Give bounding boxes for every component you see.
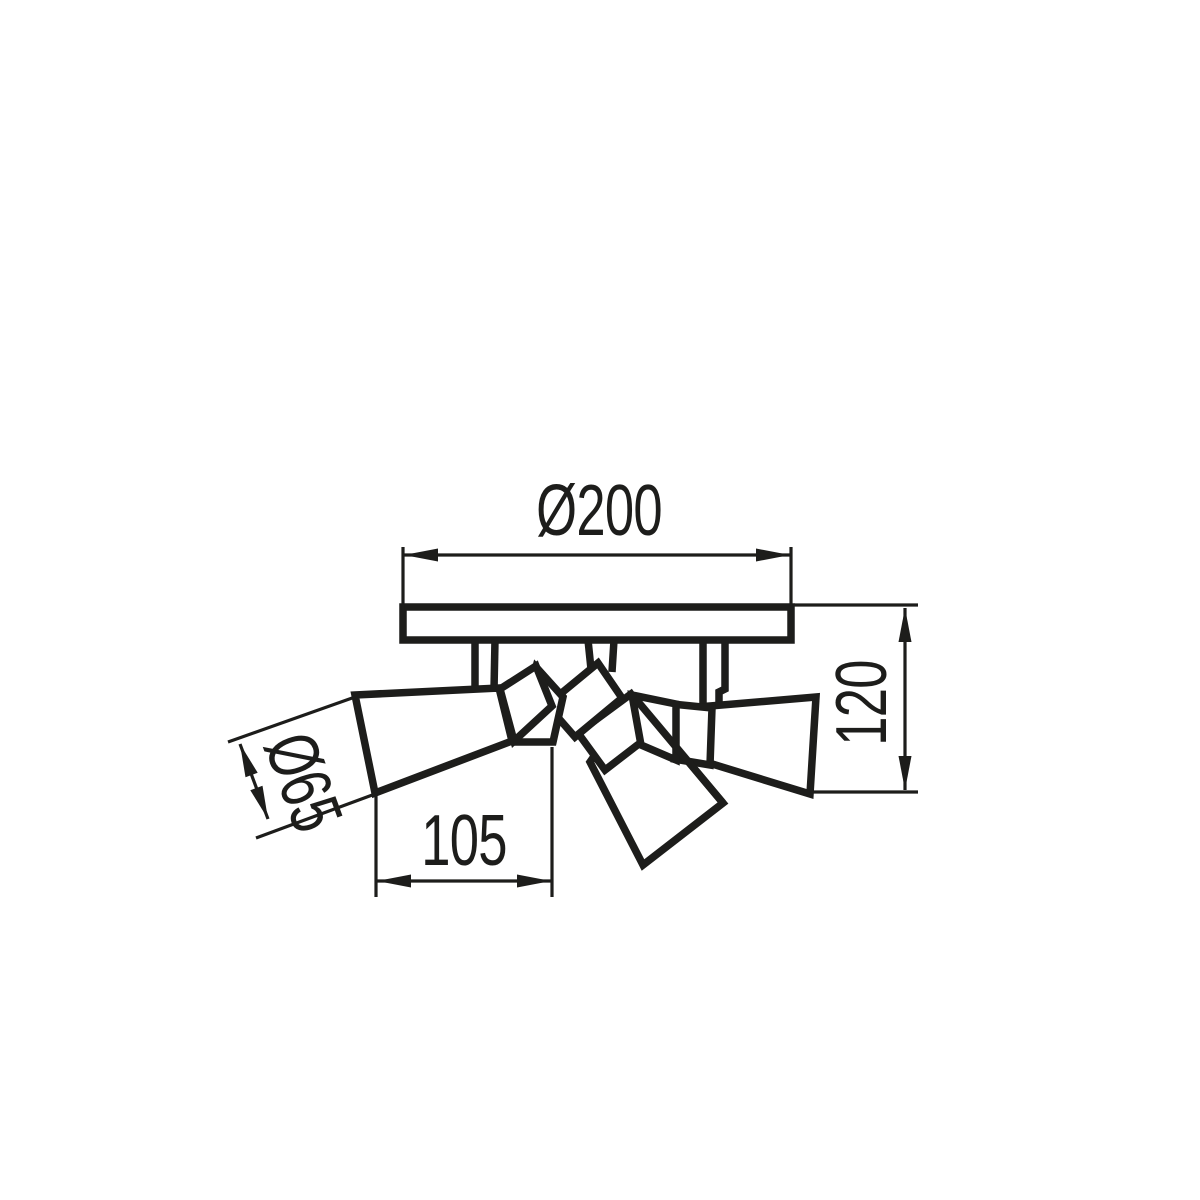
stem-left: [475, 640, 495, 691]
arrowhead-right-icon: [756, 549, 790, 562]
mounting-plate: [403, 607, 791, 640]
dim-plate-diameter: [403, 547, 791, 610]
spot-head-left: [355, 666, 563, 793]
spotlight-fixture-line-art: [0, 0, 1200, 1200]
dim-label-plate-diameter: Ø200: [490, 471, 709, 551]
spot-right-cone: [709, 697, 816, 794]
dim-label-head-length: 105: [355, 801, 574, 881]
arrowhead-left-icon: [404, 549, 438, 562]
dim-label-overall-height: 120: [822, 594, 902, 813]
spot-left-cone: [355, 688, 512, 793]
stem-right: [703, 640, 725, 705]
drawing-canvas: Ø200 120 105 Ø65: [0, 0, 1200, 1200]
